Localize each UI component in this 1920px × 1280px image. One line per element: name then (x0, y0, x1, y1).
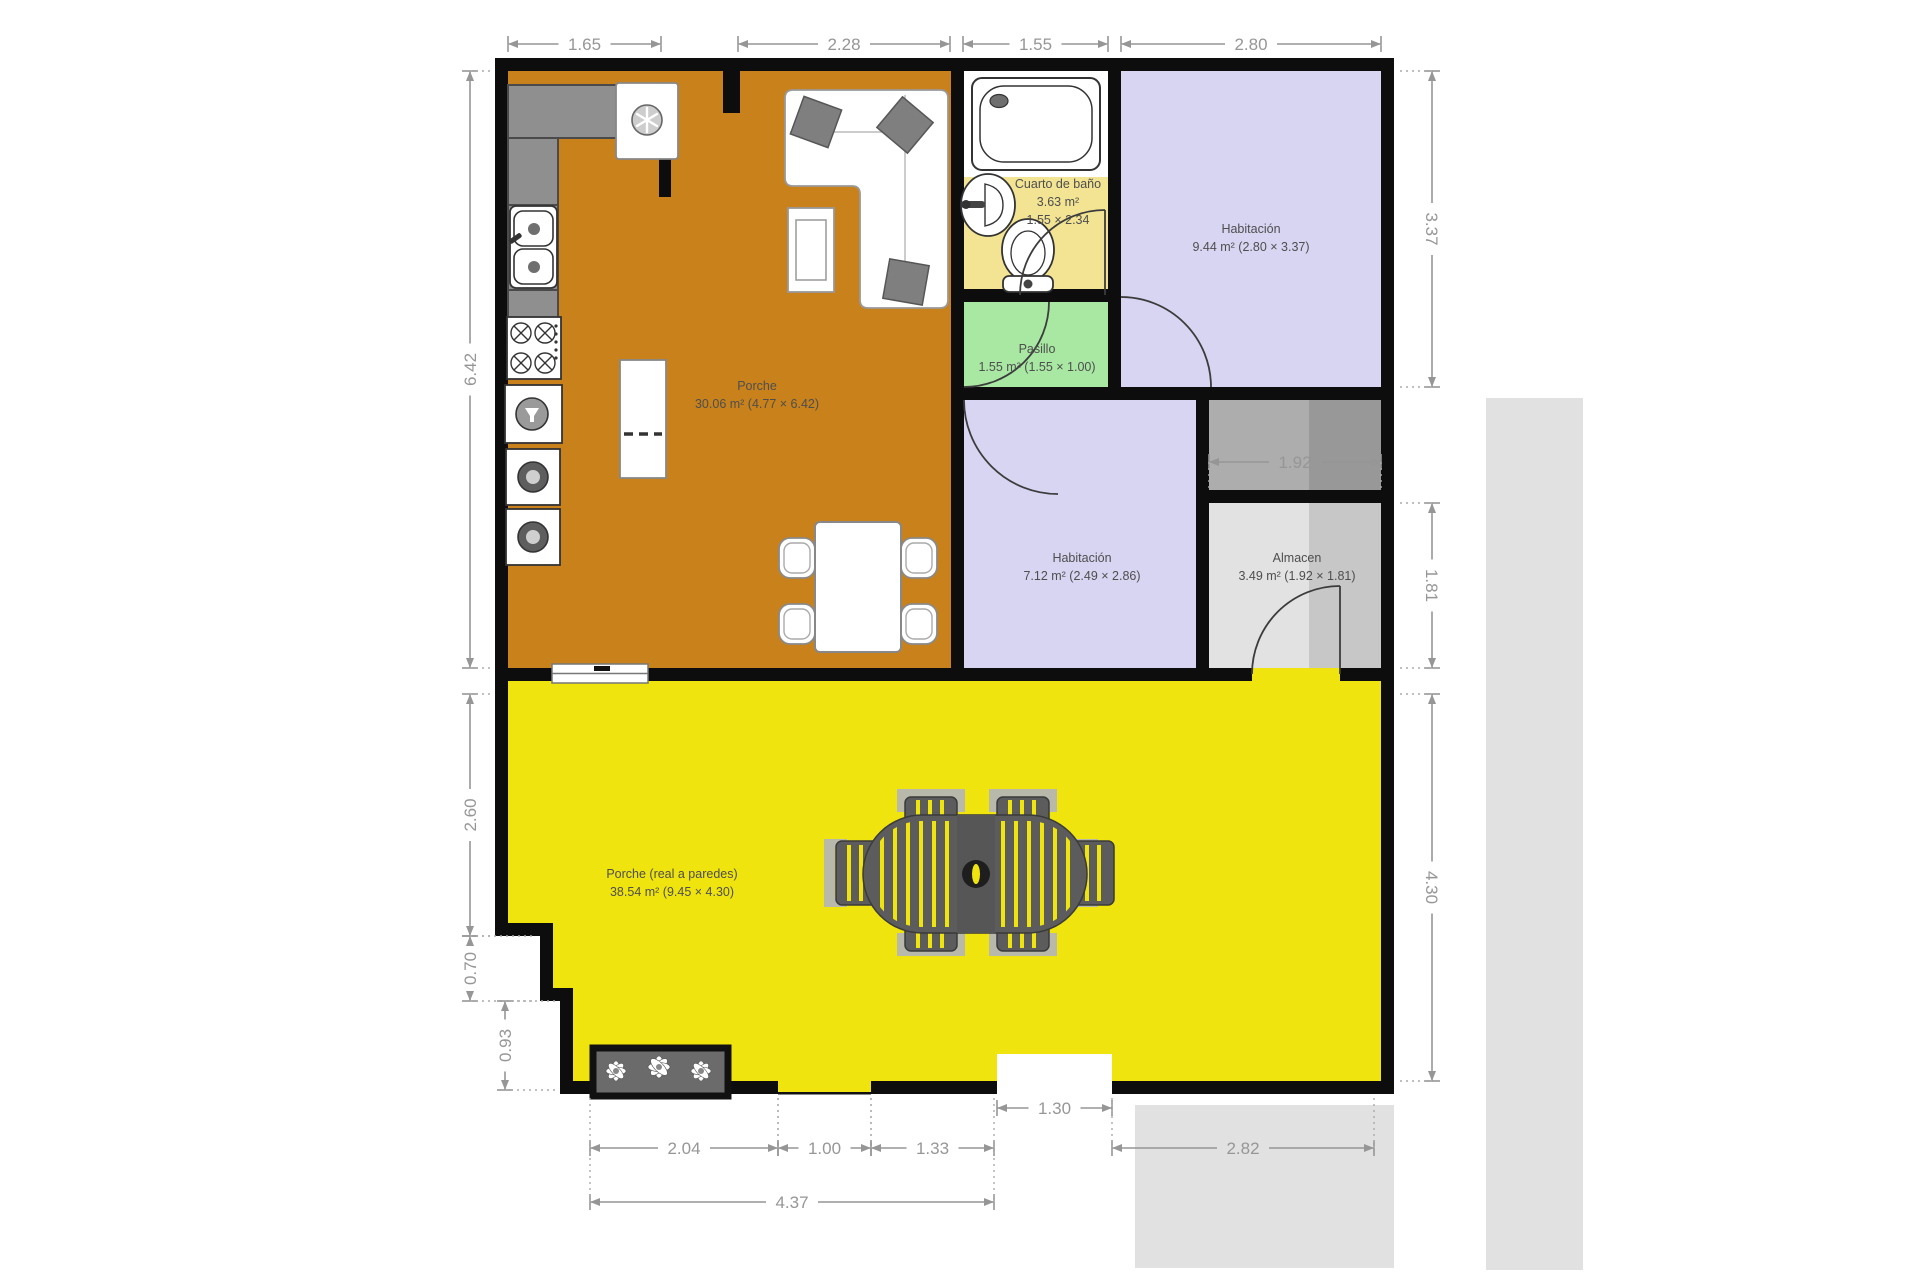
washbasin-icon[interactable] (961, 174, 1015, 236)
dishwasher-icon[interactable] (505, 385, 562, 443)
room-habitacion-2[interactable] (964, 400, 1196, 668)
washing-machine-icon[interactable] (506, 449, 560, 505)
side-table-icon[interactable] (788, 208, 834, 292)
dimension-1.55: 1.55 (963, 35, 1108, 56)
dimension-6.42: 6.42 (461, 71, 492, 668)
dimension-4.30: 4.30 (1396, 694, 1441, 1081)
dimension-1.33: 1.33 (871, 1096, 994, 1158)
porch-threshold (778, 1092, 871, 1095)
kitchen-island[interactable] (620, 360, 666, 478)
floor-plan-drawing: 1.652.281.552.806.422.600.700.933.371.81… (0, 0, 1920, 1280)
entry-alcove[interactable] (1209, 400, 1381, 490)
porch-opening (778, 1081, 871, 1093)
dimension-value: 1.55 (1019, 35, 1052, 54)
dimension-2.60: 2.60 (461, 694, 492, 936)
almacen-door-opening (1252, 668, 1340, 681)
door-handle-icon (594, 666, 610, 671)
room-almacen[interactable] (1209, 503, 1381, 668)
dimension-value: 2.82 (1226, 1139, 1259, 1158)
dimension-3.37: 3.37 (1396, 71, 1441, 387)
dimension-value: 2.80 (1234, 35, 1267, 54)
exterior-strip-right (1486, 398, 1583, 1270)
fridge-freezer-icon[interactable] (616, 83, 678, 159)
dimension-2.80: 2.80 (1121, 35, 1381, 56)
dimension-value: 1.92 (1278, 453, 1311, 472)
dimension-value: 1.65 (568, 35, 601, 54)
bathtub-icon[interactable] (972, 78, 1100, 170)
kitchen-sink-icon[interactable] (508, 206, 557, 288)
sliding-door[interactable] (552, 664, 648, 683)
dimension-value: 2.28 (827, 35, 860, 54)
toilet-icon[interactable] (1002, 219, 1054, 292)
dimension-0.70: 0.70 (461, 936, 532, 1001)
dimension-0.93: 0.93 (496, 1001, 557, 1090)
stove-icon[interactable] (507, 317, 561, 379)
floor-plan-canvas: 1.652.281.552.806.422.600.700.933.371.81… (0, 0, 1920, 1280)
dimension-value: 0.70 (461, 952, 480, 985)
dimension-value: 1.81 (1422, 569, 1441, 602)
dimension-2.04: 2.04 (590, 1096, 778, 1158)
wall-pier (723, 71, 740, 113)
dimension-value: 2.60 (461, 798, 480, 831)
dimension-value: 0.93 (496, 1029, 515, 1062)
washing-machine-icon[interactable] (506, 509, 560, 565)
dimension-1.65: 1.65 (508, 35, 661, 56)
dimension-value: 6.42 (461, 353, 480, 386)
outdoor-table-icon (863, 815, 1087, 933)
dimension-value: 4.37 (775, 1193, 808, 1212)
planter-flowers-icon[interactable] (593, 1048, 728, 1096)
wall-pier (659, 159, 671, 197)
dimension-value: 1.30 (1038, 1099, 1071, 1118)
dimension-value: 2.04 (667, 1139, 700, 1158)
kitchen-counter[interactable] (508, 85, 617, 138)
dimension-1.81: 1.81 (1396, 503, 1441, 668)
dimension-value: 4.30 (1422, 871, 1441, 904)
exterior-block-bottom (1135, 1105, 1394, 1268)
dimension-4.37: 4.37 (590, 1152, 994, 1212)
dimension-1.00: 1.00 (778, 1096, 871, 1158)
pillow-icon (883, 259, 929, 305)
dimension-value: 3.37 (1422, 212, 1441, 245)
dimension-value: 1.00 (808, 1139, 841, 1158)
dimension-2.28: 2.28 (738, 35, 950, 56)
dimension-value: 1.33 (916, 1139, 949, 1158)
